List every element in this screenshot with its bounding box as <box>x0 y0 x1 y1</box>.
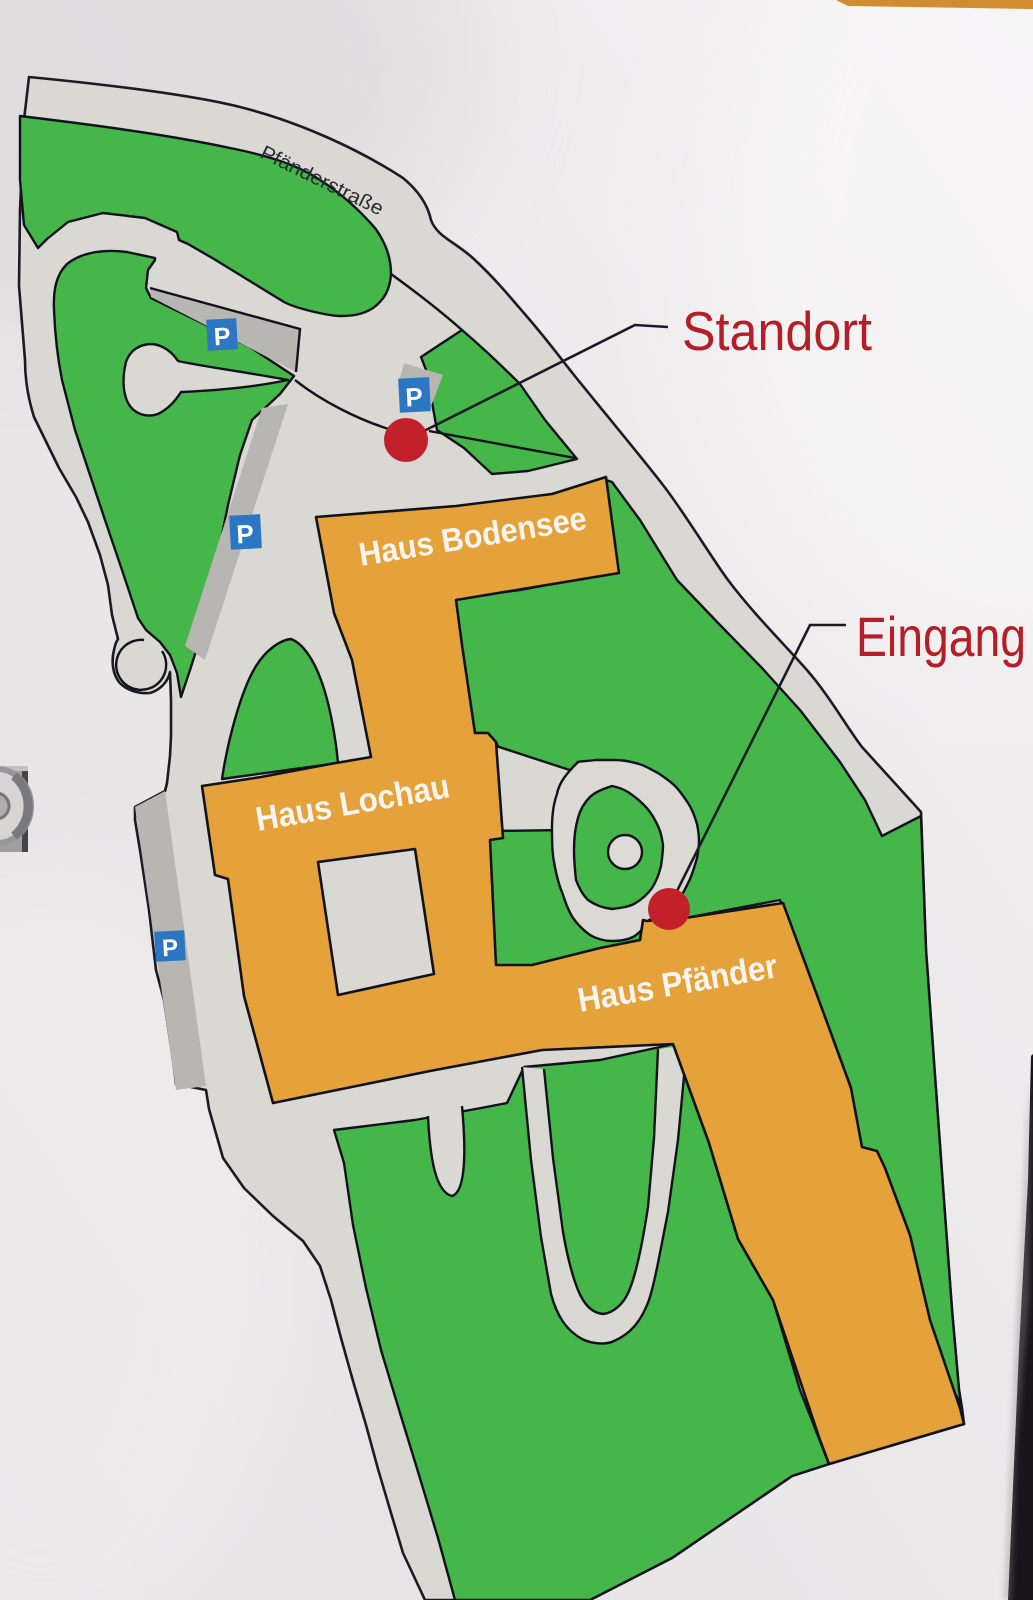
svg-text:P: P <box>213 323 231 352</box>
svg-text:Eingang: Eingang <box>856 605 1026 668</box>
svg-text:P: P <box>405 382 424 413</box>
svg-text:P: P <box>161 935 178 963</box>
svg-text:Standort: Standort <box>682 300 872 362</box>
svg-text:P: P <box>236 519 255 550</box>
